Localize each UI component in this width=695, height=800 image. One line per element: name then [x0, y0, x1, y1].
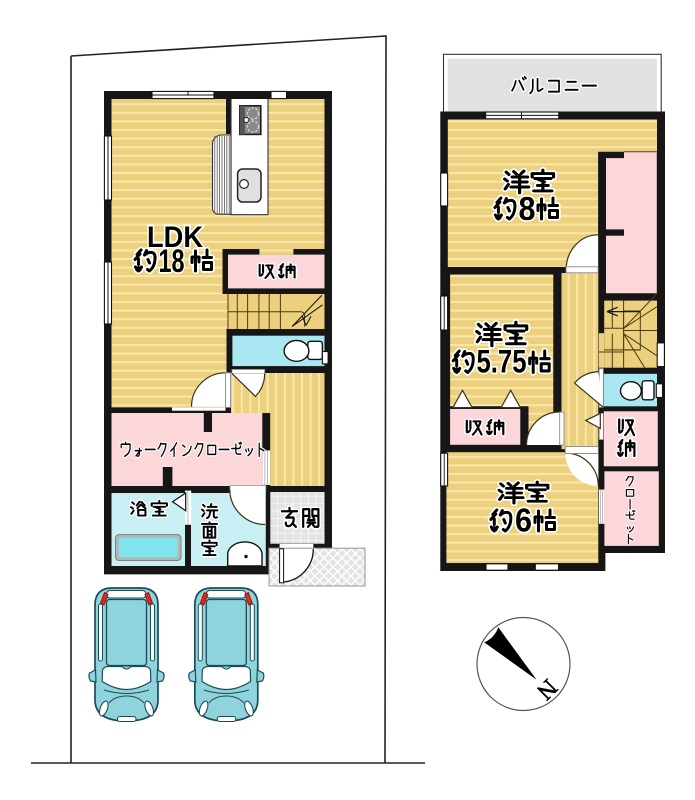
svg-text:6: 6 — [515, 502, 532, 539]
svg-text:18: 18 — [159, 243, 185, 279]
svg-text:8: 8 — [519, 190, 536, 227]
svg-text:5.75: 5.75 — [477, 344, 527, 380]
svg-text:N: N — [531, 674, 562, 705]
